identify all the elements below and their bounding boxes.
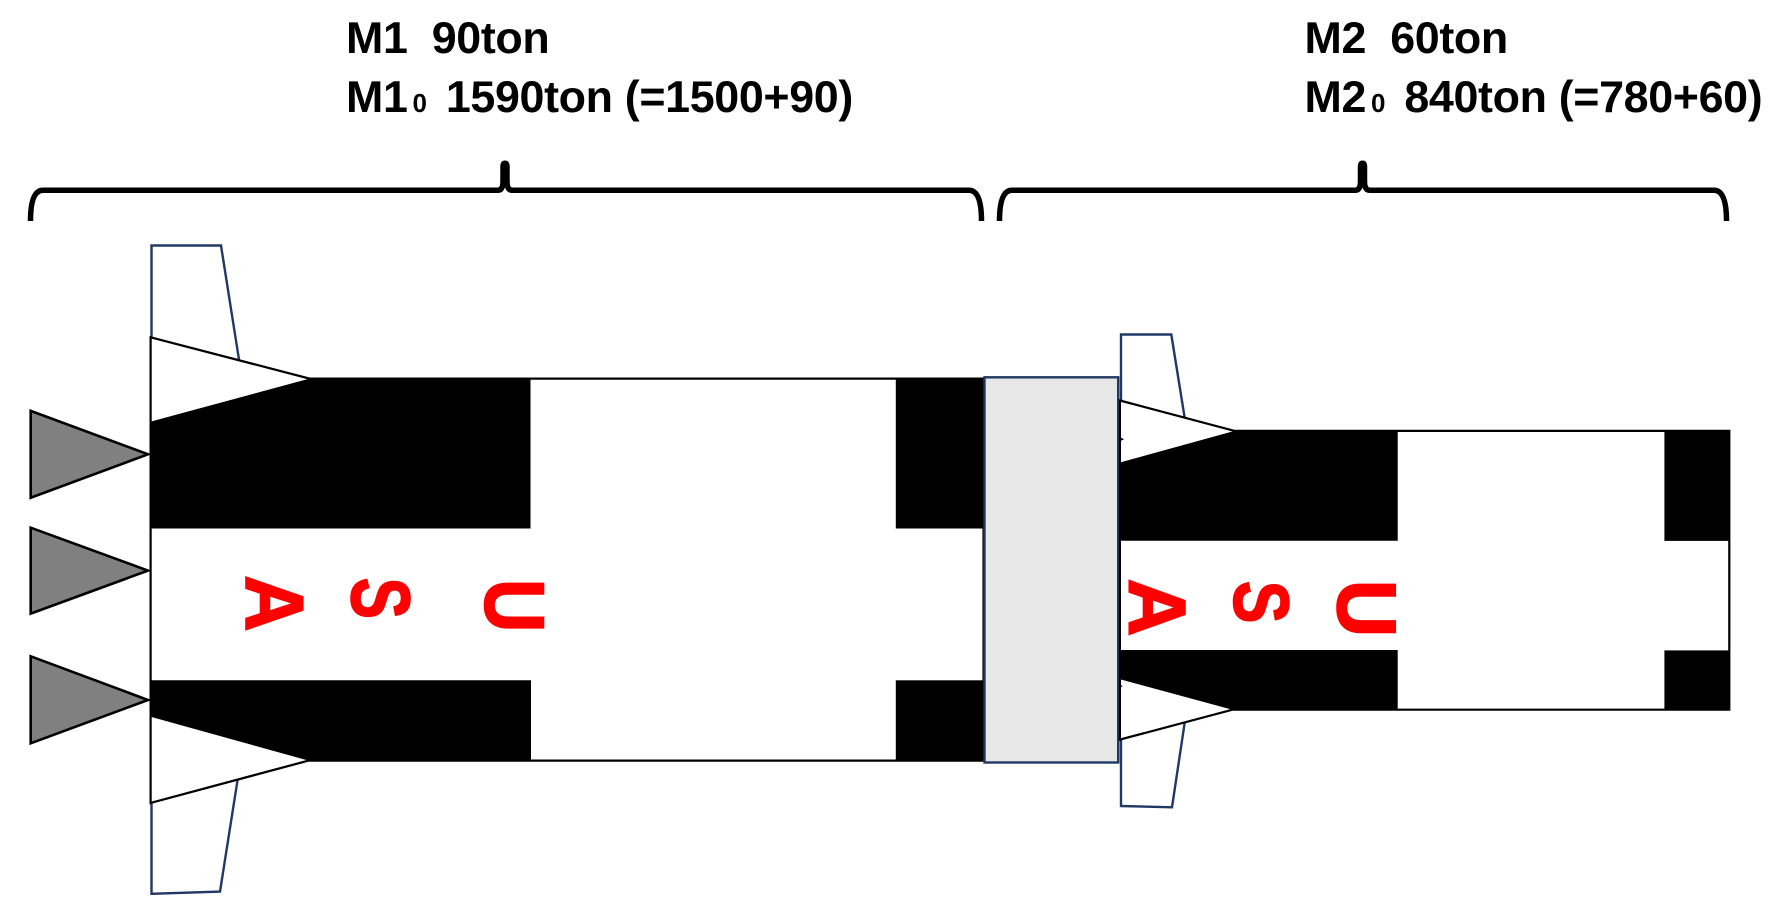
svg-text:U: U bbox=[468, 579, 563, 633]
svg-text:M1 90ton: M1 90ton bbox=[346, 13, 549, 63]
svg-text:M10 1590ton (=1500+90): M10 1590ton (=1500+90) bbox=[346, 72, 853, 122]
svg-text:M20 840ton (=780+60): M20 840ton (=780+60) bbox=[1305, 72, 1763, 122]
svg-text:U: U bbox=[1320, 580, 1413, 638]
svg-text:A: A bbox=[227, 575, 319, 632]
svg-text:M2 60ton: M2 60ton bbox=[1305, 13, 1508, 63]
svg-text:A: A bbox=[1112, 579, 1202, 637]
svg-text:S: S bbox=[334, 578, 427, 619]
svg-text:S: S bbox=[1217, 581, 1305, 624]
